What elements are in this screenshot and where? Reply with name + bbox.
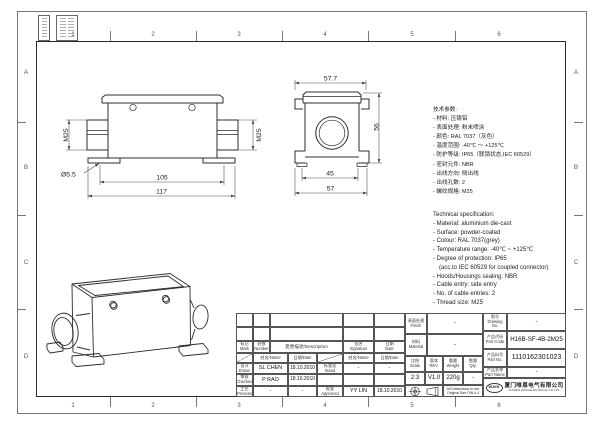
zone-number-bottom: 6: [497, 403, 500, 409]
stamp-text: [68, 18, 74, 38]
approved-name-cell: YY LIN: [343, 386, 374, 397]
zone-number-bottom: 2: [151, 403, 154, 409]
process-date: -: [302, 389, 304, 395]
wain-logo-text: WAIN: [489, 385, 500, 389]
process-name: -: [270, 389, 272, 395]
empty-cell: [374, 374, 405, 386]
spec-cn-line: - 出线孔数: 2: [433, 179, 535, 188]
part-name-label-en: Part Name: [485, 373, 505, 378]
stand-date: -: [389, 366, 391, 372]
zone-number-top: 4: [323, 32, 326, 38]
part-no-label-en: Part No.: [487, 358, 502, 363]
number-header: 处数 Number: [253, 341, 270, 353]
drawing-no-label-en: Drawing No.: [484, 320, 506, 329]
spec-cn-line: - 出线方向: 侧出线: [433, 170, 535, 179]
front-view: M25 M25 Ø5.5 105 117: [54, 72, 266, 202]
revision-cell: [343, 313, 374, 327]
name-subheader: 姓名/Name: [253, 353, 288, 363]
spec-en-line: - Cable entry: side entry: [433, 281, 548, 290]
zone-letter-right: A: [574, 70, 578, 76]
drawn-date-cell: 18.10.2010: [288, 363, 317, 374]
process-date-cell: -: [288, 386, 317, 397]
zone-tick: [455, 31, 456, 41]
part-no-value: 1110162301023: [512, 354, 562, 362]
zone-letter-left: D: [24, 354, 28, 360]
scale-label-cell: 比例 Scale: [405, 356, 425, 372]
zone-tick: [368, 397, 369, 407]
dim-117: 117: [156, 189, 167, 196]
zone-tick: [17, 309, 26, 310]
zone-tick: [17, 122, 26, 123]
zone-letter-right: C: [574, 260, 578, 266]
spec-cn: 技术参数: - 材料: 压铸铝 - 表面处理: 粉末喷涂 - 颜色: RAL 7…: [433, 106, 535, 197]
spec-en-line: - Material: aluminium die-cast: [433, 220, 548, 229]
zone-number-top: 3: [237, 32, 240, 38]
stand-label-en: Stand: [325, 369, 336, 374]
spec-en-line: - No. of cable entries: 2: [433, 290, 548, 299]
zone-tick: [574, 122, 583, 123]
spec-cn-line: - 材料: 压铸铝: [433, 115, 535, 124]
part-name-label-cell: 产品名称 Part Name: [483, 367, 507, 378]
spec-en-line: - Temperature range: -40℃ ~ +125℃: [433, 246, 548, 255]
revision-cell: [270, 313, 343, 327]
dim-57-7: 57.7: [324, 76, 337, 83]
spec-cn-line: - 表面处理: 粉末喷涂: [433, 124, 535, 133]
checked-label-cell: 审核 Checked: [236, 374, 253, 386]
stand-date-cell: -: [374, 363, 405, 374]
approved-name: YY LIN: [350, 388, 367, 394]
diagonal-cell: [236, 353, 253, 363]
zone-tick: [17, 215, 26, 216]
spec-en-line: - Thread size: M25: [433, 299, 548, 308]
process-name-cell: -: [253, 386, 288, 397]
part-code-label-cell: 产品代码 Part Code: [483, 331, 507, 349]
zone-number-top: 2: [151, 32, 154, 38]
name-subheader-label: 姓名/Name: [348, 356, 368, 361]
zone-tick: [196, 397, 197, 407]
dim-m25-right: M25: [256, 128, 263, 141]
zone-tick: [574, 215, 583, 216]
spec-cn-line: - 防护等级: IP65（联锁状态,IEC 60529）: [433, 151, 535, 160]
revision-cell: [270, 327, 343, 341]
zone-tick: [455, 397, 456, 407]
company-cell: WAIN 厦门唯恩电气有限公司 XIAMEN WAIN ELECTRICAL C…: [483, 378, 566, 397]
projection-symbol-cell: [405, 385, 443, 397]
date-header: 日期 Date: [374, 341, 405, 353]
part-name-value: -: [536, 369, 538, 376]
spec-en-line: - Surface: powder-coated: [433, 229, 548, 238]
zone-letter-right: D: [574, 354, 578, 360]
material-label-cell: 材料 Material: [405, 334, 427, 356]
zone-number-top: 5: [410, 32, 413, 38]
diagonal-cell: [317, 353, 343, 363]
signature-label-en: Signature: [350, 347, 368, 352]
dim-57: 57: [327, 186, 335, 193]
approved-date: 18.10.2010: [377, 389, 402, 395]
material-value: -: [454, 342, 456, 349]
stamp-text: [60, 18, 66, 38]
process-label-cell: 工艺 Process: [236, 386, 253, 397]
date-subheader-label: 日期/Date: [381, 356, 399, 361]
rev-value-cell: V1.0: [425, 372, 443, 385]
zone-number-bottom: 5: [410, 403, 413, 409]
drawing-no-label-cell: 图号 Drawing No.: [483, 313, 507, 331]
zone-letter-right: B: [574, 165, 578, 171]
zone-tick: [110, 397, 111, 407]
date-subheader: 日期/Date: [374, 353, 405, 363]
description-header: 变更描述/Description: [270, 341, 343, 353]
drawing-sheet: 1 2 3 4 5 6 1 2 3 4 5 6 A B C D A B C D: [0, 0, 600, 424]
stamp-text: [42, 18, 47, 38]
revision-cell: [236, 327, 253, 341]
spec-en-title: Technical specification:: [433, 211, 548, 220]
revision-cell: [374, 313, 405, 327]
rev-label-en: REV.: [429, 364, 438, 369]
weight-label-en: Weight: [447, 364, 460, 369]
drawing-no-value: -: [536, 319, 538, 326]
spec-en-line: - Degree of protection: IP65: [433, 255, 548, 264]
corner-stamp-box: [38, 15, 50, 41]
zone-number-bottom: 3: [237, 403, 240, 409]
spec-en-line: (acc.to IEC 60529 for coupled connector): [433, 264, 548, 273]
qty-label-cell: 数量 Qty.: [463, 356, 483, 372]
zone-number-top: 6: [497, 32, 500, 38]
zone-tick: [196, 31, 197, 41]
part-code-value: H16B-SF-4B-2M25: [510, 337, 563, 344]
spec-cn-line: - 螺纹规格: M25: [433, 188, 535, 197]
spec-cn-title: 技术参数:: [433, 106, 535, 115]
wain-logo: WAIN: [486, 383, 503, 393]
side-view: 57.7 56 45 57: [283, 72, 387, 200]
spec-en-line: - Colour: RAL 7037(grey): [433, 237, 548, 246]
signature-header: 签名 Signature: [343, 341, 374, 353]
dim-56: 56: [374, 123, 381, 131]
zone-letter-left: A: [24, 70, 28, 76]
part-code-value-cell: H16B-SF-4B-2M25: [507, 331, 566, 349]
zone-tick: [574, 309, 583, 310]
zone-tick: [368, 31, 369, 41]
title-block: 标记 Mark 处数 Number 变更描述/Description 签名 Si…: [236, 313, 566, 397]
isometric-view: [48, 262, 218, 380]
dim-dia-5-5: Ø5.5: [61, 172, 76, 179]
spec-en: Technical specification: - Material: alu…: [433, 211, 548, 308]
checked-date: 18.10.2010: [290, 377, 315, 383]
stand-label-cell: 标准化 Stand: [317, 363, 343, 374]
drawing-no-value-cell: -: [507, 313, 566, 331]
stand-name-cell: -: [343, 363, 374, 374]
qty-value: -: [472, 375, 474, 382]
mark-label-en: Mark: [240, 347, 249, 352]
company-name-en: XIAMEN WAIN ELECTRICAL CO.LTD: [509, 389, 560, 392]
name-subheader-label: 姓名/Name: [260, 356, 280, 361]
zone-tick: [282, 397, 283, 407]
dim-45: 45: [326, 171, 334, 178]
weight-value: 220g: [446, 375, 459, 382]
zone-letter-left: C: [24, 260, 28, 266]
mark-header: 标记 Mark: [236, 341, 253, 353]
zone-tick: [282, 31, 283, 41]
empty-cell: [343, 374, 374, 386]
revision-cell: [253, 327, 270, 341]
material-value-cell: -: [427, 334, 483, 356]
dim-105: 105: [156, 175, 168, 182]
part-no-value-cell: 1110162301023: [507, 349, 566, 367]
finish-label-cell: 表面处理 Finish: [405, 313, 427, 334]
spec-cn-line: - 颜色: RAL 7037（灰色）: [433, 133, 535, 142]
name-subheader: 姓名/Name: [343, 353, 374, 363]
rev-label-cell: 版本 REV.: [425, 356, 443, 372]
number-label-en: Number: [254, 347, 269, 352]
scale-value-cell: 2:3: [405, 372, 425, 385]
approved-date-cell: 18.10.2010: [374, 386, 405, 397]
part-no-label-cell: 产品料号 Part No.: [483, 349, 507, 367]
material-label-en: Material: [409, 345, 424, 350]
dim-m25-left: M25: [63, 128, 70, 141]
empty-cell: [317, 374, 343, 386]
revision-cell: [253, 313, 270, 327]
qty-label-en: Qty.: [469, 364, 476, 369]
dimension-note-cell: All Dimensions in mm Original Size DIN A…: [443, 385, 483, 397]
projection-symbol-icon: [408, 386, 440, 397]
stand-name: -: [358, 366, 360, 372]
dimension-note-2: Original Size DIN A 4: [447, 391, 479, 395]
drawn-date: 18.10.2010: [290, 366, 315, 372]
spec-cn-line: - 密封元件: NBR: [433, 161, 535, 170]
process-label-en: Process: [237, 392, 252, 397]
checked-name: P RAO: [262, 377, 279, 383]
finish-value: -: [454, 320, 456, 327]
checked-date-cell: 18.10.2010: [288, 374, 317, 386]
drawn-label-cell: 设计 Drawn: [236, 363, 253, 374]
date-subheader-label: 日期/Date: [294, 356, 312, 361]
qty-value-cell: -: [463, 372, 483, 385]
zone-letter-left: B: [24, 165, 28, 171]
description-label: 变更描述/Description: [285, 344, 328, 349]
approved-label-cell: 批准 Approved: [317, 386, 343, 397]
checked-name-cell: P RAO: [253, 374, 288, 386]
weight-value-cell: 220g: [443, 372, 463, 385]
drawn-name-cell: SL CHEN: [253, 363, 288, 374]
checked-label-en: Checked: [236, 380, 252, 385]
scale-value: 2:3: [411, 375, 419, 382]
part-name-value-cell: -: [507, 367, 566, 378]
rev-value: V1.0: [428, 375, 440, 382]
corner-stamp-box: [56, 15, 78, 41]
weight-label-cell: 重量 Weight: [443, 356, 463, 372]
spec-en-line: - Hoods/Housings sealing: NBR: [433, 273, 548, 282]
approved-label-en: Approved: [321, 392, 339, 397]
date-label-en: Date: [385, 347, 394, 352]
scale-label-en: Scale: [410, 364, 420, 369]
revision-cell: [236, 313, 253, 327]
zone-number-bottom: 1: [71, 403, 74, 409]
revision-cell: [374, 327, 405, 341]
drawn-name: SL CHEN: [259, 365, 282, 371]
finish-value-cell: -: [427, 313, 483, 334]
spec-cn-line: - 温度范围: -40℃ ～ +125℃: [433, 142, 535, 151]
part-code-label-en: Part Code: [486, 340, 504, 345]
drawn-label-en: Drawn: [239, 369, 251, 374]
revision-cell: [343, 327, 374, 341]
zone-number-bottom: 4: [323, 403, 326, 409]
finish-label-en: Finish: [411, 324, 422, 329]
zone-tick: [110, 31, 111, 41]
date-subheader: 日期/Date: [288, 353, 317, 363]
